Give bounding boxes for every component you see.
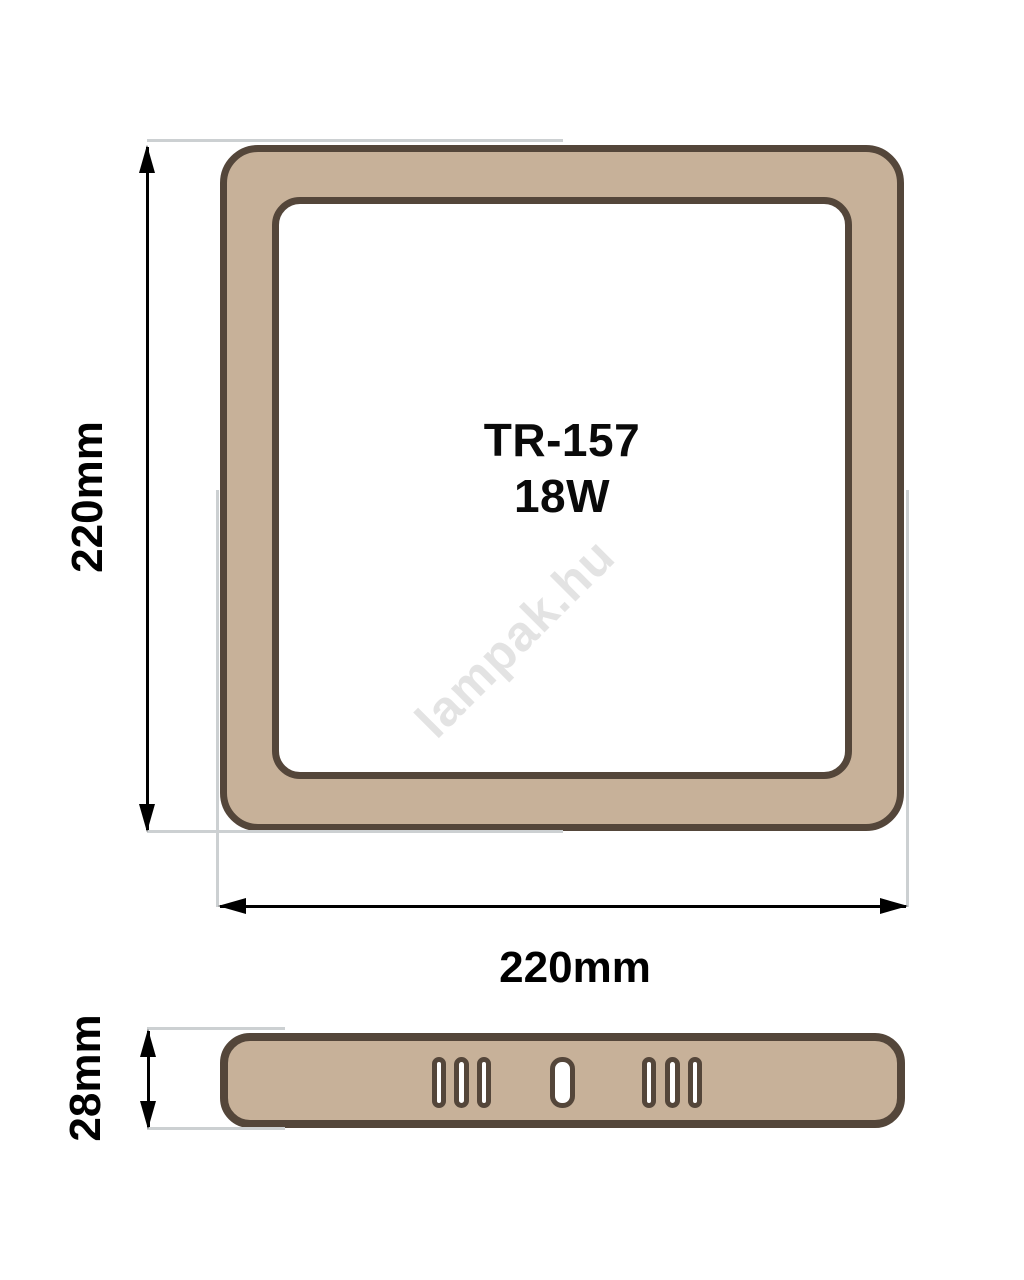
arrowhead-up-icon — [139, 145, 155, 173]
extension-line-side-top — [147, 1027, 285, 1030]
extension-line-right — [906, 490, 909, 907]
dimension-line-height — [146, 147, 149, 830]
vent-slot — [642, 1057, 656, 1108]
depth-dimension-label: 28mm — [61, 1014, 111, 1141]
vent-slot — [665, 1057, 680, 1108]
extension-line-left — [216, 490, 219, 907]
vent-slot — [432, 1057, 446, 1108]
product-model: TR-157 — [430, 412, 694, 468]
height-dimension-label: 220mm — [63, 421, 113, 573]
width-dimension-label: 220mm — [499, 943, 651, 993]
arrowhead-up-icon — [140, 1029, 156, 1057]
arrowhead-down-icon — [139, 804, 155, 832]
vent-slot — [454, 1057, 469, 1108]
arrowhead-down-icon — [140, 1101, 156, 1129]
extension-line-bottom — [147, 830, 563, 833]
product-wattage: 18W — [430, 468, 694, 524]
vent-slot — [477, 1057, 491, 1108]
vent-slot-center — [550, 1057, 575, 1108]
extension-line-top — [147, 139, 563, 142]
dimension-line-width — [220, 905, 906, 908]
dimension-drawing: TR-157 18W lampak.hu 220mm 220mm 28mm — [0, 0, 1024, 1280]
extension-line-side-bottom — [147, 1127, 285, 1130]
vent-slot — [688, 1057, 702, 1108]
arrowhead-left-icon — [218, 898, 246, 914]
product-label: TR-157 18W — [430, 412, 694, 524]
arrowhead-right-icon — [880, 898, 908, 914]
